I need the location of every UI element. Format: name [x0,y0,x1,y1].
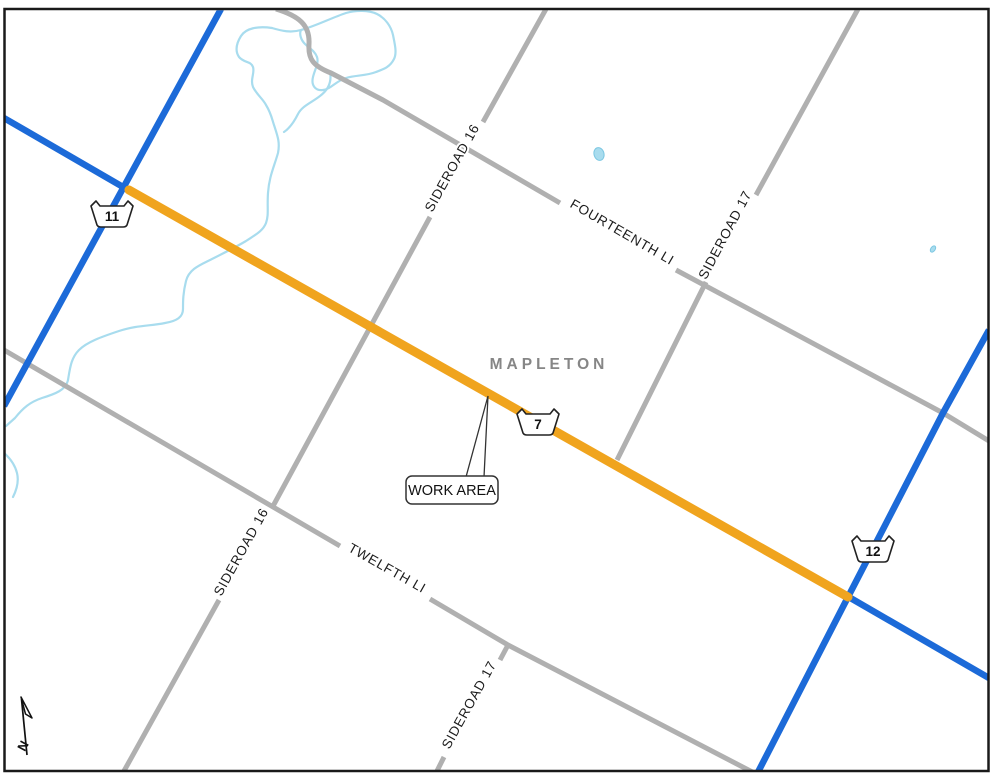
municipality-label: MAPLETON [490,356,609,373]
marker-number: 11 [105,209,120,224]
marker-number: 12 [865,544,880,559]
marker-number: 7 [534,417,542,432]
callout-label: WORK AREA [408,483,496,499]
work-area-location-map: SIDEROAD 16 SIDEROAD 16 SIDEROAD 17 SIDE… [0,0,1000,777]
map-background [0,0,1000,777]
